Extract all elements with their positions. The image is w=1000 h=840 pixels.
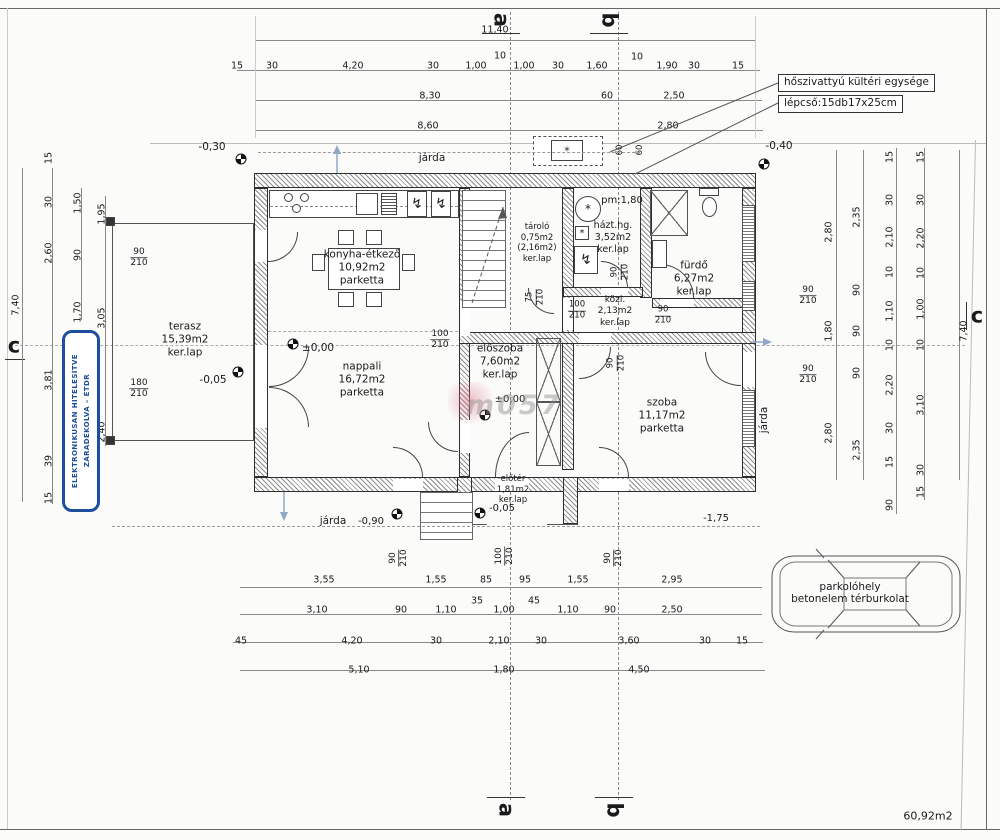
terrace-post bbox=[106, 436, 115, 445]
door-width: 100 bbox=[494, 546, 505, 565]
dim-label: 30 bbox=[699, 636, 711, 646]
dim-label: 10 bbox=[885, 266, 895, 278]
room-label-eloszoba: előszoba 7,60m2 ker.lap bbox=[477, 342, 523, 381]
level-marker-icon bbox=[475, 508, 486, 519]
dim-label: 2,10 bbox=[885, 226, 895, 247]
level-label: -0,05 bbox=[489, 504, 515, 514]
level-label: -0,30 bbox=[198, 142, 225, 153]
level-label: -0,05 bbox=[199, 375, 226, 386]
jarda-label: járda bbox=[320, 516, 347, 527]
dim-label: 1,50 bbox=[73, 192, 83, 213]
dim-label: 1,55 bbox=[567, 575, 588, 585]
dim-label: 2,35 bbox=[852, 206, 862, 227]
dim-label: 4,20 bbox=[341, 636, 362, 646]
dim-label: 10 bbox=[916, 267, 926, 279]
dim-label: 30 bbox=[427, 61, 439, 71]
dim-label: 7,40 bbox=[959, 320, 969, 341]
door-size-label: 90210 bbox=[388, 549, 410, 566]
dim-label: 2,95 bbox=[661, 575, 682, 585]
door-arc bbox=[428, 422, 458, 452]
dim-label: 15 bbox=[916, 486, 926, 498]
room-area: 2,13m2 bbox=[598, 306, 633, 317]
room-label-terasz: terasz 15,39m2 ker.lap bbox=[162, 320, 209, 359]
dim-label: 11,40 bbox=[481, 25, 508, 35]
lightning-icon: ↯ bbox=[580, 253, 592, 267]
dim-label: 30 bbox=[44, 196, 54, 208]
dim-label: 90 bbox=[395, 605, 407, 615]
dim-label: 1,00 bbox=[493, 605, 514, 615]
dim-line bbox=[52, 168, 53, 504]
door-arc bbox=[269, 387, 309, 427]
stair-direction-arrow bbox=[458, 185, 518, 315]
room-area: 16,72m2 bbox=[339, 373, 386, 386]
dim-line bbox=[22, 168, 23, 502]
dim-label: 1,10 bbox=[557, 605, 578, 615]
dim-label: 90 bbox=[852, 284, 862, 296]
door-height: 210 bbox=[799, 376, 816, 386]
dim-label: 3,10 bbox=[306, 605, 327, 615]
dim-label: 15 bbox=[44, 152, 54, 164]
door-opening bbox=[743, 352, 755, 387]
window bbox=[742, 205, 755, 262]
dim-line bbox=[959, 150, 960, 480]
stamp-line1: ELEKTRONIKUSAN HITELESÍTVE bbox=[71, 354, 80, 488]
heat-pump-icon: * bbox=[564, 146, 570, 157]
dim-label: 85 bbox=[480, 575, 492, 585]
window bbox=[742, 390, 755, 447]
room-floor: ker.lap bbox=[598, 318, 633, 329]
door-size-label: 100210 bbox=[430, 329, 449, 351]
dim-label: 10 bbox=[916, 339, 926, 351]
room-name: előtér bbox=[497, 474, 530, 485]
slope-arrow-icon bbox=[330, 143, 344, 175]
dim-label: 90 bbox=[885, 499, 895, 511]
frame-line bbox=[0, 8, 1000, 9]
dim-label: 10 bbox=[631, 52, 643, 62]
dim-label: 3,55 bbox=[313, 575, 334, 585]
door-size-label: 90210 bbox=[603, 549, 625, 566]
toilet bbox=[702, 197, 717, 217]
frame-line bbox=[7, 8, 8, 829]
room-name: terasz bbox=[162, 320, 209, 333]
dim-label: 15 bbox=[231, 61, 243, 71]
door-width: 90 bbox=[603, 549, 614, 566]
dim-label: 2,35 bbox=[852, 439, 862, 460]
level-marker-icon bbox=[288, 339, 299, 350]
slope-arrow-icon bbox=[748, 336, 774, 348]
door-height: 210 bbox=[400, 549, 410, 566]
door-size-label: 90210 bbox=[607, 355, 628, 371]
etdr-stamp: ELEKTRONIKUSAN HITELESÍTVE ZÁRADÉKOLVA –… bbox=[62, 330, 100, 512]
section-marker-b: b bbox=[599, 12, 620, 27]
pm-label: pm:1,80 bbox=[601, 196, 643, 206]
dim-line bbox=[240, 587, 762, 588]
room-name: nappali bbox=[339, 360, 386, 373]
boundary-line bbox=[961, 140, 976, 830]
door-size-label: 90210 bbox=[799, 285, 816, 307]
floor-plan-canvas: a b a b c c 11,40 15 30 4,20 30 1,00 10 … bbox=[0, 0, 1000, 840]
door-arc bbox=[393, 447, 423, 477]
room-area: 3,52m2 bbox=[594, 232, 633, 244]
dim-label: 3,10 bbox=[916, 394, 926, 415]
door-size-label: 90210 bbox=[611, 264, 632, 280]
room-name: konyha-étkező bbox=[324, 248, 401, 261]
dim-label: 15 bbox=[885, 151, 895, 163]
door-height: 210 bbox=[506, 546, 516, 565]
level-label: -0,90 bbox=[358, 517, 384, 527]
room-label-kozl: közl. 2,13m2 ker.lap bbox=[598, 295, 633, 329]
room-area: 0,75m2 bbox=[517, 232, 556, 243]
stamp-line2: ZÁRADÉKOLVA – ÉTDR bbox=[83, 374, 92, 467]
section-marker-c: c bbox=[971, 306, 983, 327]
dim-label: 10 bbox=[885, 339, 895, 351]
dim-label: 30 bbox=[885, 194, 895, 206]
room-label-furdo: fürdő 6,27m2 ker.lap bbox=[674, 259, 714, 298]
room-floor: ker.lap bbox=[674, 286, 714, 299]
wall-porch bbox=[563, 477, 578, 524]
note-heat-pump: hőszivattyú kültéri egysége bbox=[778, 74, 935, 92]
dim-label: 1,55 bbox=[425, 575, 446, 585]
room-label-eloter: előtér 1,81m2 ker.lap bbox=[497, 474, 530, 506]
dim-label: 15 bbox=[44, 492, 54, 504]
room-floor: parketta bbox=[639, 423, 686, 436]
chair bbox=[338, 292, 354, 307]
dim-label: 2,80 bbox=[824, 422, 834, 443]
dim-line bbox=[255, 40, 755, 41]
door-height: 210 bbox=[568, 312, 586, 322]
appliance bbox=[381, 193, 397, 215]
room-floor: ker.lap bbox=[162, 347, 209, 360]
room-area2: (2,16m2) bbox=[517, 243, 556, 254]
room-name: előszoba bbox=[477, 342, 523, 355]
dim-label: 2,60 bbox=[44, 242, 54, 263]
room-label-tarolo: tároló 0,75m2 (2,16m2) ker.lap bbox=[517, 222, 556, 265]
dim-label: 1,00 bbox=[916, 298, 926, 319]
dim-label: 4,20 bbox=[342, 61, 363, 71]
dim-label: 45 bbox=[235, 636, 247, 646]
dim-label: 1,80 bbox=[824, 320, 834, 341]
level-label: ±0,00 bbox=[302, 343, 334, 354]
dim-label: 1,70 bbox=[73, 301, 83, 322]
room-label-nappali: nappali 16,72m2 parketta bbox=[339, 360, 386, 399]
dim-label: 30 bbox=[266, 61, 278, 71]
door-arc bbox=[495, 432, 529, 477]
door-size-label: 90210 bbox=[799, 364, 816, 386]
dim-line bbox=[836, 150, 837, 480]
room-name: fürdő bbox=[674, 259, 714, 272]
door-height: 210 bbox=[430, 341, 449, 351]
door-opening bbox=[255, 230, 267, 262]
section-marker-line bbox=[487, 797, 525, 798]
dim-label: 2,50 bbox=[661, 605, 682, 615]
dim-label: 3,05 bbox=[97, 307, 107, 328]
room-area: 11,17m2 bbox=[639, 409, 686, 422]
entry-steps bbox=[420, 492, 473, 540]
door-opening bbox=[460, 420, 470, 453]
room-name: szoba bbox=[639, 396, 686, 409]
door-height: 210 bbox=[622, 264, 632, 280]
chair bbox=[366, 292, 382, 307]
room-label-hazthg: házt.hg. 3,52m2 ker.lap bbox=[594, 220, 633, 256]
level-marker-icon bbox=[392, 509, 403, 520]
door-size-label: 75210 bbox=[526, 289, 547, 305]
door-height: 210 bbox=[615, 549, 625, 566]
section-marker-a: a bbox=[496, 803, 517, 817]
dim-label: 90 bbox=[852, 367, 862, 379]
section-marker-b: b bbox=[604, 802, 625, 817]
dim-label: 1,10 bbox=[435, 605, 456, 615]
door-size-label: 90210 bbox=[655, 306, 671, 327]
dim-ext bbox=[255, 16, 256, 138]
door-height: 210 bbox=[799, 297, 816, 307]
dim-label: 30 bbox=[885, 422, 895, 434]
terrace-post bbox=[106, 217, 115, 226]
dim-line bbox=[863, 150, 864, 480]
sink bbox=[300, 193, 309, 202]
door-height: 210 bbox=[655, 317, 671, 327]
dim-label: 15 bbox=[916, 151, 926, 163]
dim-label: 3,60 bbox=[618, 636, 639, 646]
dim-label: 30 bbox=[916, 194, 926, 206]
section-marker-line bbox=[590, 33, 628, 34]
washbasin bbox=[652, 240, 667, 268]
level-label: -1,75 bbox=[703, 514, 729, 524]
dim-label: 30 bbox=[916, 464, 926, 476]
dim-label: 7,40 bbox=[11, 294, 21, 315]
dim-label: 95 bbox=[519, 575, 531, 585]
door-arc bbox=[705, 352, 741, 386]
room-label-szoba: szoba 11,17m2 parketta bbox=[639, 396, 686, 435]
chair bbox=[366, 230, 382, 245]
room-floor: parketta bbox=[324, 275, 401, 288]
dim-label: 15 bbox=[885, 456, 895, 468]
dim-label: 4,50 bbox=[628, 665, 649, 675]
total-area-label: 60,92m2 bbox=[903, 811, 952, 822]
sink bbox=[292, 204, 301, 213]
dim-label: 5,10 bbox=[348, 665, 369, 675]
dim-label: 1,00 bbox=[513, 61, 534, 71]
room-area: 10,92m2 bbox=[324, 261, 401, 274]
door-width: 90 bbox=[799, 285, 816, 296]
section-marker-line bbox=[595, 797, 633, 798]
section-marker-c: c bbox=[8, 336, 20, 357]
level-marker-icon bbox=[233, 367, 244, 378]
door-opening bbox=[599, 479, 629, 491]
stove bbox=[356, 193, 378, 215]
watermark-text: m057 bbox=[466, 390, 563, 421]
door-opening bbox=[393, 479, 423, 491]
dim-label: 90 bbox=[852, 325, 862, 337]
utility-icon: * bbox=[580, 229, 585, 239]
room-floor: ker.lap bbox=[477, 369, 523, 382]
dim-label: 90 bbox=[73, 249, 83, 261]
room-name: házt.hg. bbox=[594, 220, 633, 232]
dim-label: 35 bbox=[471, 596, 483, 606]
room-label-konyha: konyha-étkező 10,92m2 parketta bbox=[324, 248, 401, 287]
dim-line bbox=[896, 148, 897, 514]
lightning-icon: ↯ bbox=[435, 197, 447, 211]
room-area: 7,60m2 bbox=[477, 355, 523, 368]
room-area: 1,81m2 bbox=[497, 485, 530, 496]
door-opening bbox=[255, 345, 267, 428]
jarda-label: járda bbox=[759, 407, 770, 434]
door-width: 100 bbox=[430, 329, 449, 340]
room-floor: parketta bbox=[339, 387, 386, 400]
washer-icon: * bbox=[585, 203, 591, 215]
slope-arrow-icon bbox=[277, 490, 291, 524]
note-text: lépcső:15db17x25cm bbox=[784, 97, 897, 109]
dim-label: 1,80 bbox=[493, 665, 514, 675]
room-area: 15,39m2 bbox=[162, 333, 209, 346]
note-text: hőszivattyú kültéri egysége bbox=[784, 76, 929, 88]
dim-label: 2,20 bbox=[916, 227, 926, 248]
door-size-label: 100210 bbox=[494, 546, 516, 565]
porch-edge bbox=[547, 524, 578, 525]
door-height: 210 bbox=[618, 355, 628, 371]
sink bbox=[284, 193, 293, 202]
room-area: 6,27m2 bbox=[674, 272, 714, 285]
parking-label: parkolóhely bbox=[819, 582, 880, 593]
dim-label: 8,30 bbox=[419, 91, 440, 101]
dim-label: 10 bbox=[494, 51, 506, 61]
door-height: 210 bbox=[537, 289, 547, 305]
shower bbox=[650, 190, 688, 236]
door-width: 90 bbox=[388, 549, 399, 566]
level-marker-icon bbox=[236, 154, 247, 165]
dim-label: 2,20 bbox=[885, 374, 895, 395]
walkway-edge bbox=[112, 526, 760, 527]
frame-line bbox=[986, 8, 987, 829]
door-arc bbox=[268, 232, 298, 262]
window bbox=[742, 281, 755, 311]
dim-label: 1,00 bbox=[465, 61, 486, 71]
toilet-tank bbox=[699, 188, 719, 196]
room-name: tároló bbox=[517, 222, 556, 233]
chair bbox=[338, 230, 354, 245]
walkway-edge bbox=[258, 152, 640, 153]
lightning-icon: ↯ bbox=[411, 197, 423, 211]
jarda-label: járda bbox=[419, 153, 446, 164]
dim-label: 8,60 bbox=[417, 121, 438, 131]
dim-label: 1,10 bbox=[885, 300, 895, 321]
dim-label: 30 bbox=[535, 636, 547, 646]
dim-label: 15 bbox=[736, 636, 748, 646]
room-name: közl. bbox=[598, 295, 633, 306]
parking-label: betonelem térburkolat bbox=[791, 594, 909, 605]
note-stairs: lépcső:15db17x25cm bbox=[778, 95, 903, 113]
chair bbox=[402, 254, 415, 271]
dim-label: 45 bbox=[528, 596, 540, 606]
room-floor: ker.lap bbox=[517, 254, 556, 265]
door-size-label: 100210 bbox=[568, 301, 586, 322]
dim-label: 30 bbox=[430, 636, 442, 646]
frame-line bbox=[0, 829, 1000, 830]
door-width: 90 bbox=[799, 364, 816, 375]
door-arc bbox=[599, 447, 629, 477]
dim-label: 90 bbox=[604, 605, 616, 615]
room-floor: ker.lap bbox=[594, 244, 633, 256]
dim-label: 2,10 bbox=[488, 636, 509, 646]
dim-label: 30 bbox=[552, 61, 564, 71]
dim-label: 39 bbox=[44, 455, 54, 467]
dim-label: 3,81 bbox=[44, 369, 54, 390]
dim-label: 2,80 bbox=[824, 221, 834, 242]
door-opening bbox=[579, 333, 611, 343]
leader-lines bbox=[600, 66, 785, 181]
